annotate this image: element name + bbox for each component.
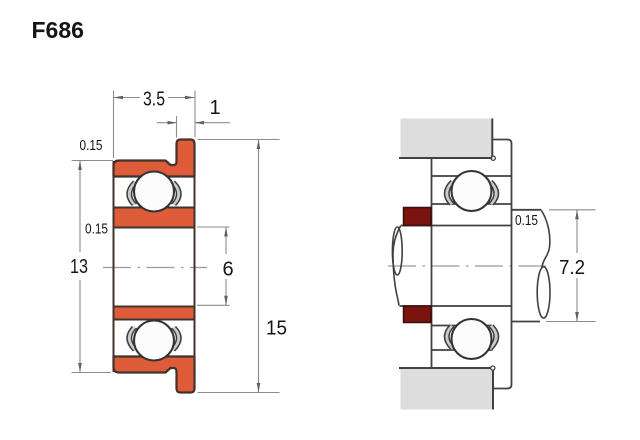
svg-text:7.2: 7.2 [559,257,585,279]
svg-text:0.15: 0.15 [515,213,538,229]
svg-text:13: 13 [70,256,88,278]
svg-text:3.5: 3.5 [143,89,165,111]
svg-text:0.15: 0.15 [85,222,108,238]
svg-text:1: 1 [209,97,220,119]
svg-text:0.15: 0.15 [80,138,103,154]
svg-text:6: 6 [222,258,233,280]
svg-text:F686: F686 [32,17,84,43]
svg-text:15: 15 [266,318,287,340]
